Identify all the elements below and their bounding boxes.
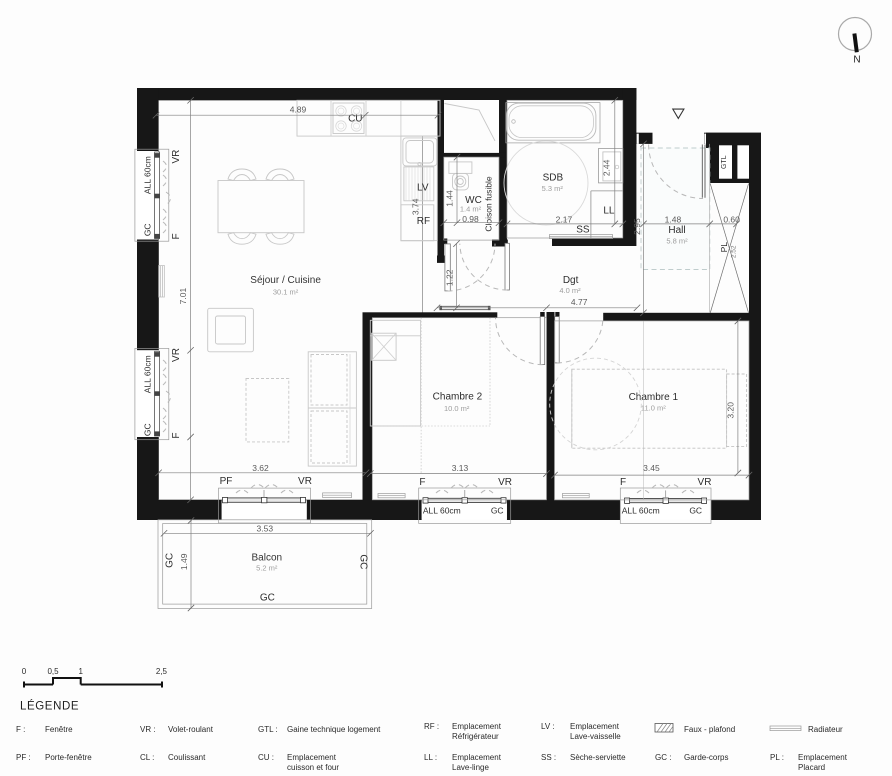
- svg-text:GTL: GTL: [721, 155, 728, 169]
- svg-text:5.8 m²: 5.8 m²: [666, 237, 688, 246]
- svg-text:Lave-vaisselle: Lave-vaisselle: [570, 732, 621, 741]
- svg-text:Faux - plafond: Faux - plafond: [684, 725, 735, 734]
- svg-text:LL: LL: [603, 206, 615, 217]
- svg-text:RF: RF: [417, 216, 430, 227]
- svg-text:VR: VR: [171, 150, 182, 164]
- svg-text:11.0 m²: 11.0 m²: [641, 404, 666, 413]
- svg-text:5.3 m²: 5.3 m²: [542, 184, 564, 193]
- svg-text:RF :: RF :: [424, 722, 439, 731]
- svg-text:Dgt: Dgt: [563, 275, 579, 286]
- svg-text:2.17: 2.17: [556, 214, 573, 224]
- svg-text:Garde-corps: Garde-corps: [684, 753, 728, 762]
- svg-text:ALL 60cm: ALL 60cm: [143, 156, 153, 194]
- svg-text:PL: PL: [719, 242, 729, 253]
- svg-text:F: F: [620, 477, 626, 488]
- svg-text:ALL 60cm: ALL 60cm: [143, 355, 153, 393]
- svg-text:PF: PF: [220, 476, 233, 487]
- svg-text:VR: VR: [498, 477, 512, 488]
- svg-text:3.13: 3.13: [452, 463, 469, 473]
- svg-text:0: 0: [22, 667, 27, 676]
- svg-text:1.44: 1.44: [445, 190, 455, 207]
- svg-text:Réfrigérateur: Réfrigérateur: [452, 732, 499, 741]
- svg-text:GTL :: GTL :: [258, 725, 278, 734]
- svg-text:Fenêtre: Fenêtre: [45, 725, 73, 734]
- svg-text:2.95: 2.95: [632, 218, 642, 235]
- svg-text:ALL 60cm: ALL 60cm: [622, 506, 660, 516]
- svg-text:LÉGENDE: LÉGENDE: [20, 700, 79, 713]
- svg-text:Emplacement: Emplacement: [452, 722, 502, 731]
- svg-text:Chambre 1: Chambre 1: [629, 392, 679, 403]
- svg-text:Séjour / Cuisine: Séjour / Cuisine: [250, 275, 321, 286]
- svg-text:ALL 60cm: ALL 60cm: [423, 506, 461, 516]
- svg-text:Volet-roulant: Volet-roulant: [168, 725, 214, 734]
- svg-text:Lave-linge: Lave-linge: [452, 763, 489, 772]
- svg-text:Emplacement: Emplacement: [570, 722, 620, 731]
- svg-text:Placard: Placard: [798, 763, 825, 772]
- svg-text:CL :: CL :: [140, 753, 154, 762]
- svg-text:0,5: 0,5: [47, 667, 59, 676]
- svg-text:N: N: [853, 55, 860, 66]
- svg-text:3.45: 3.45: [643, 463, 660, 473]
- svg-text:7.01: 7.01: [178, 288, 188, 305]
- svg-text:Porte-fenêtre: Porte-fenêtre: [45, 753, 92, 762]
- svg-text:LV :: LV :: [541, 722, 555, 731]
- svg-text:GC: GC: [260, 593, 275, 604]
- svg-text:PL :: PL :: [770, 753, 784, 762]
- svg-text:0.60: 0.60: [723, 214, 740, 224]
- svg-text:30.1 m²: 30.1 m²: [273, 288, 299, 297]
- svg-text:LV: LV: [417, 183, 429, 194]
- svg-text:Emplacement: Emplacement: [287, 753, 337, 762]
- svg-text:Emplacement: Emplacement: [452, 753, 502, 762]
- svg-text:3.53: 3.53: [257, 524, 274, 534]
- svg-text:1: 1: [78, 667, 83, 676]
- svg-text:F: F: [171, 433, 182, 439]
- svg-text:Gaine technique logement: Gaine technique logement: [287, 725, 381, 734]
- svg-text:4.0 m²: 4.0 m²: [559, 286, 581, 295]
- svg-text:CU :: CU :: [258, 753, 274, 762]
- svg-text:LL :: LL :: [424, 753, 437, 762]
- svg-text:GC: GC: [689, 506, 702, 516]
- svg-text:VR: VR: [171, 348, 182, 362]
- svg-text:SDB: SDB: [543, 172, 564, 183]
- svg-text:Radiateur: Radiateur: [808, 725, 843, 734]
- svg-text:SS :: SS :: [541, 753, 556, 762]
- svg-text:VR: VR: [298, 476, 312, 487]
- svg-text:2,5: 2,5: [156, 667, 168, 676]
- svg-text:1.4 m²: 1.4 m²: [460, 205, 482, 214]
- svg-text:GC: GC: [143, 423, 153, 436]
- svg-text:SS: SS: [576, 225, 590, 236]
- svg-text:cuisson et four: cuisson et four: [287, 763, 339, 772]
- svg-text:1.22: 1.22: [445, 269, 455, 286]
- svg-text:F: F: [171, 233, 182, 239]
- svg-text:2.44: 2.44: [602, 159, 612, 176]
- svg-text:VR: VR: [698, 477, 712, 488]
- svg-text:10.0 m²: 10.0 m²: [444, 404, 470, 413]
- svg-text:GC: GC: [143, 223, 153, 236]
- svg-text:5.2 m²: 5.2 m²: [256, 563, 278, 572]
- svg-text:3.74: 3.74: [410, 198, 420, 215]
- svg-text:4.89: 4.89: [290, 104, 307, 114]
- svg-text:F :: F :: [16, 725, 25, 734]
- svg-text:2.52: 2.52: [731, 245, 738, 258]
- svg-text:1.48: 1.48: [665, 214, 682, 224]
- svg-text:Hall: Hall: [668, 225, 685, 236]
- svg-text:3.20: 3.20: [726, 402, 736, 419]
- svg-text:3.62: 3.62: [252, 463, 269, 473]
- svg-text:Chambre 2: Chambre 2: [433, 392, 483, 403]
- svg-text:Balcon: Balcon: [252, 553, 283, 564]
- svg-text:GC: GC: [358, 554, 369, 569]
- svg-text:1.49: 1.49: [179, 553, 189, 570]
- svg-text:Coulissant: Coulissant: [168, 753, 206, 762]
- svg-text:4.77: 4.77: [571, 297, 588, 307]
- svg-text:GC: GC: [165, 553, 176, 568]
- svg-text:F: F: [419, 477, 425, 488]
- svg-text:Emplacement: Emplacement: [798, 753, 848, 762]
- svg-text:GC: GC: [491, 506, 504, 516]
- svg-text:GC :: GC :: [655, 753, 671, 762]
- svg-text:VR :: VR :: [140, 725, 156, 734]
- svg-text:PF :: PF :: [16, 753, 31, 762]
- svg-text:Sèche-serviette: Sèche-serviette: [570, 753, 626, 762]
- svg-text:Cloison fusible: Cloison fusible: [483, 176, 493, 232]
